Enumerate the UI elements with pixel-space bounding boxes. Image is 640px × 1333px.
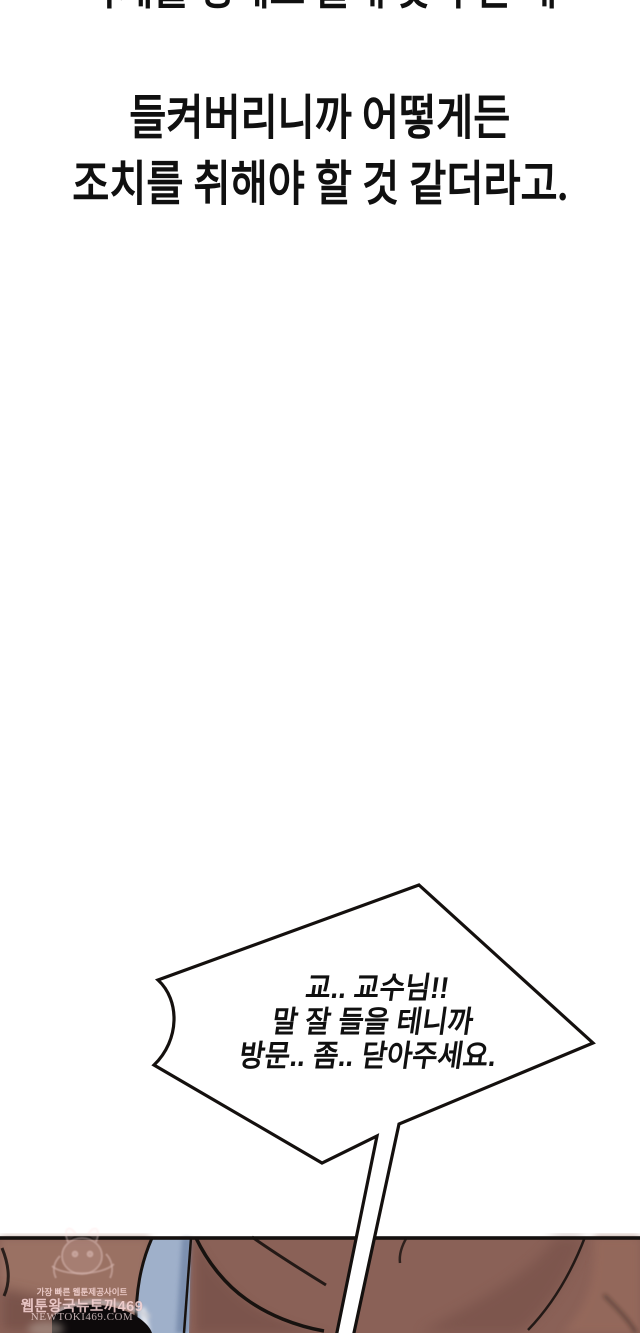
bubble-dialogue: 교.. 교수님!! 말 잘 들을 테니까 방문.. 좀.. 닫아주세요. — [156, 972, 589, 1074]
speech-bubble — [0, 0, 640, 1333]
speech-bubble-outline — [154, 885, 593, 1333]
webtoon-page: 과제를 핑계로 몰래 찾아 온 게 들켜버리니까 어떻게든 조치를 취해야 할 … — [0, 0, 640, 1333]
bubble-line-2: 말 잘 들을 테니까 — [270, 1006, 475, 1039]
bubble-line-1: 교.. 교수님!! — [304, 972, 452, 1005]
bubble-line-3: 방문.. 좀.. 닫아주세요. — [237, 1040, 498, 1073]
